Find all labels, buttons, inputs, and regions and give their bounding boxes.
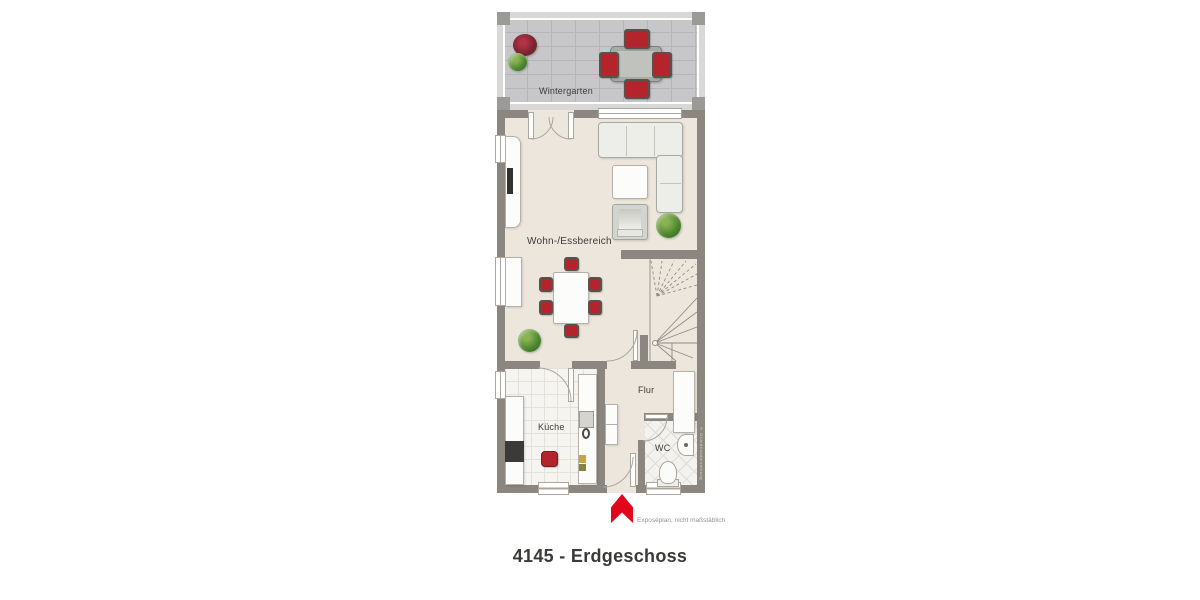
dining-chair	[539, 300, 553, 315]
window-kitchen-bottom	[538, 482, 569, 495]
red-arrow-logo-icon	[611, 494, 633, 523]
green-plant-icon	[656, 213, 681, 238]
kitchen-accessory	[579, 464, 586, 471]
dining-chair	[539, 277, 553, 292]
chair-seat	[654, 54, 670, 76]
sideboard	[505, 257, 522, 307]
hall-cabinet	[605, 404, 618, 445]
hall-cabinet-divider	[606, 424, 617, 425]
hall-door-leaf	[633, 330, 638, 361]
sofa-cushion-line	[626, 126, 627, 156]
window-kitchen-left	[495, 371, 506, 399]
chair-seat	[541, 279, 551, 290]
sink-drain-icon	[684, 443, 688, 447]
chair-seat	[566, 259, 577, 269]
dining-chair	[564, 324, 579, 338]
kitchen-door-leaf	[568, 368, 574, 402]
hall-wardrobe	[673, 371, 695, 433]
chair-seat	[626, 31, 648, 47]
dining-chair	[588, 277, 602, 292]
wall-top	[680, 110, 705, 118]
wc-door-leaf	[645, 414, 668, 419]
chair-seat	[566, 326, 577, 336]
wall-wc-left	[638, 440, 645, 485]
double-door-leaf-right	[568, 112, 574, 139]
floor-plan-page: Wintergarten	[0, 0, 1200, 600]
page-title: 4145 - Erdgeschoss	[0, 546, 1200, 567]
disclaimer-text: Exposéplan, nicht maßstäblich	[637, 517, 725, 524]
dining-table	[553, 272, 589, 324]
corner-sofa-top	[598, 122, 683, 158]
wall-stair-stub	[640, 335, 648, 361]
kitchen-stool	[541, 451, 558, 467]
wintergarten-table-top	[616, 51, 656, 77]
wintergarten-chair	[624, 29, 650, 49]
toilet-bowl	[659, 461, 677, 484]
armchair	[612, 204, 648, 240]
tv-icon	[507, 168, 513, 194]
vertical-watermark: © Grundrissdarstellung	[694, 426, 704, 488]
wall-stair-bottom	[631, 361, 676, 369]
corner-sofa-right	[656, 155, 683, 213]
chair-seat	[541, 302, 551, 313]
green-plant-icon	[518, 329, 541, 352]
stove-icon	[505, 441, 524, 462]
kitchen-sink	[579, 411, 594, 428]
kitchen-accessory	[579, 455, 586, 463]
wall-stair-top	[621, 250, 705, 259]
wintergarten-chair	[624, 79, 650, 99]
entrance-door-leaf	[630, 453, 636, 487]
wintergarten-corner-post	[692, 12, 705, 25]
wintergarten-chair	[652, 52, 672, 78]
coffee-table	[612, 165, 648, 199]
wall-top	[497, 110, 528, 118]
green-plant-icon	[508, 53, 527, 71]
chair-seat	[590, 302, 600, 313]
wintergarten-corner-post	[692, 97, 705, 110]
wall-living-kitchen	[497, 361, 540, 369]
wall-top	[574, 110, 600, 118]
sofa-cushion-line	[654, 126, 655, 156]
room-label-living: Wohn-/Essbereich	[527, 236, 612, 247]
faucet-icon	[582, 428, 590, 439]
wall-kitchen-hall	[597, 361, 605, 485]
window-living-top	[598, 108, 682, 119]
wintergarten-corner-post	[497, 12, 510, 25]
room-label-kitchen: Küche	[538, 422, 565, 432]
wintergarten-chair	[599, 52, 619, 78]
room-label-wc: WC	[655, 443, 670, 453]
dining-chair	[564, 257, 579, 271]
armchair-seat	[617, 229, 643, 237]
sofa-cushion-line	[660, 183, 681, 184]
room-label-hall: Flur	[638, 385, 654, 395]
armchair-back	[619, 209, 641, 229]
dining-chair	[588, 300, 602, 315]
room-label-wintergarten: Wintergarten	[539, 86, 593, 96]
chair-seat	[590, 279, 600, 290]
double-door-leaf-left	[528, 112, 534, 139]
wintergarten-corner-post	[497, 97, 510, 110]
chair-seat	[601, 54, 617, 76]
chair-seat	[626, 81, 648, 97]
